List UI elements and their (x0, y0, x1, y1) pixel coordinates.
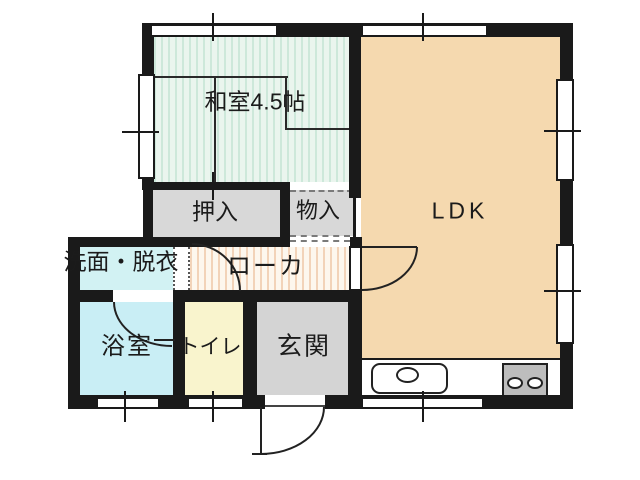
floor-plan: 和室4.5帖 押入 物入 LDK 洗面・脱衣 ローカ 浴室 トイレ 玄関 (0, 0, 640, 480)
wall-segment (348, 290, 362, 397)
tick-mark (422, 13, 424, 41)
label-senmen-datsui: 洗面・脱衣 (64, 251, 179, 274)
label-yokushitsu: 浴室 (101, 335, 153, 359)
tick-mark (544, 130, 581, 132)
window (556, 244, 574, 344)
wall-segment (143, 182, 153, 243)
stove-burner-icon (527, 377, 543, 389)
tick-mark (212, 13, 214, 41)
genkan-threshold (265, 405, 325, 407)
window (361, 24, 488, 37)
monoire-dashed-line (290, 235, 350, 237)
label-monoire: 物入 (296, 200, 340, 222)
wall-segment (68, 237, 290, 247)
label-roka: ローカ (227, 255, 305, 279)
tick-mark (212, 172, 214, 200)
window (187, 397, 244, 409)
label-oshiire: 押入 (192, 201, 238, 224)
tatami-line (285, 128, 349, 130)
monoire-dashed-line (290, 240, 350, 242)
wall-segment (349, 23, 361, 198)
tick-mark (544, 290, 581, 292)
label-genkan: 玄関 (277, 335, 331, 360)
entry-door-arc (261, 407, 324, 454)
tatami-line (154, 76, 288, 78)
tick-mark (212, 391, 214, 422)
wall-segment (280, 188, 290, 237)
wall-segment (243, 290, 257, 397)
tick-mark (122, 131, 159, 133)
wall-segment (173, 290, 362, 302)
wall-segment (143, 182, 290, 190)
window (138, 74, 155, 179)
window (150, 24, 278, 37)
label-ldk: LDK (432, 200, 489, 223)
sink-drain-icon (396, 367, 419, 383)
stove-burner-icon (507, 377, 523, 389)
ldk-door-jamb (349, 246, 362, 291)
tick-mark (124, 391, 126, 422)
tick-mark (422, 391, 424, 422)
monoire-sliding-door (353, 198, 356, 237)
label-toire: トイレ (179, 337, 242, 358)
wall-segment (68, 290, 113, 302)
label-washitsu: 和室4.5帖 (205, 91, 306, 114)
window (96, 397, 160, 409)
